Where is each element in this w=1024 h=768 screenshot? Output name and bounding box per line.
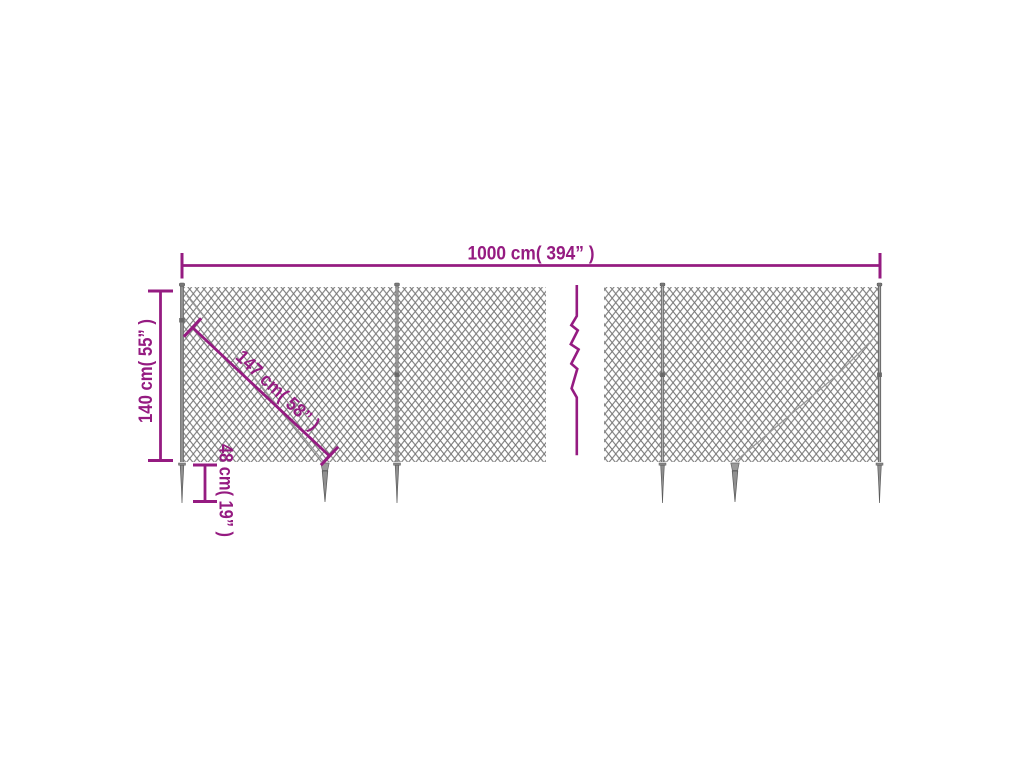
svg-text:48 cm( 19” ): 48 cm( 19” )	[215, 444, 236, 537]
svg-text:140 cm( 55” ): 140 cm( 55” )	[136, 319, 157, 423]
svg-text:1000 cm( 394” ): 1000 cm( 394” )	[468, 244, 595, 265]
